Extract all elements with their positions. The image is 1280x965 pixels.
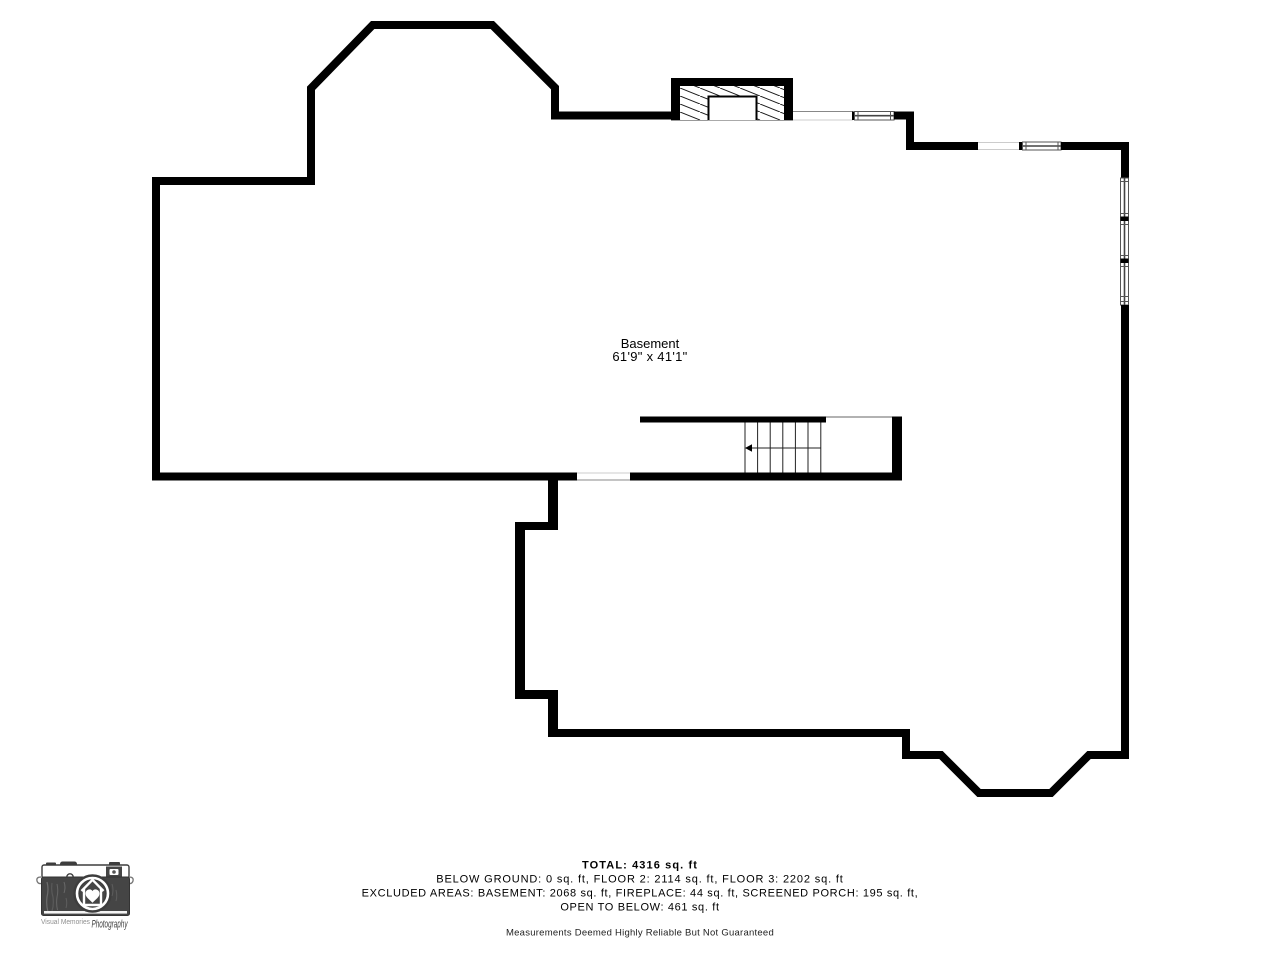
svg-text:BELOW GROUND: 0 sq. ft, FLOOR: BELOW GROUND: 0 sq. ft, FLOOR 2: 2114 sq…: [436, 874, 843, 886]
svg-text:OPEN TO BELOW: 461 sq. ft: OPEN TO BELOW: 461 sq. ft: [560, 902, 719, 914]
svg-text:Measurements Deemed Highly Rel: Measurements Deemed Highly Reliable But …: [506, 928, 774, 939]
svg-text:EXCLUDED AREAS: BASEMENT: 2068: EXCLUDED AREAS: BASEMENT: 2068 sq. ft, F…: [362, 888, 919, 900]
svg-text:TOTAL: 4316 sq. ft: TOTAL: 4316 sq. ft: [582, 860, 698, 872]
svg-text:61'9" x 41'1": 61'9" x 41'1": [612, 349, 687, 364]
svg-text:Photography: Photography: [92, 919, 129, 931]
svg-text:Visual Memories: Visual Memories: [41, 919, 90, 926]
